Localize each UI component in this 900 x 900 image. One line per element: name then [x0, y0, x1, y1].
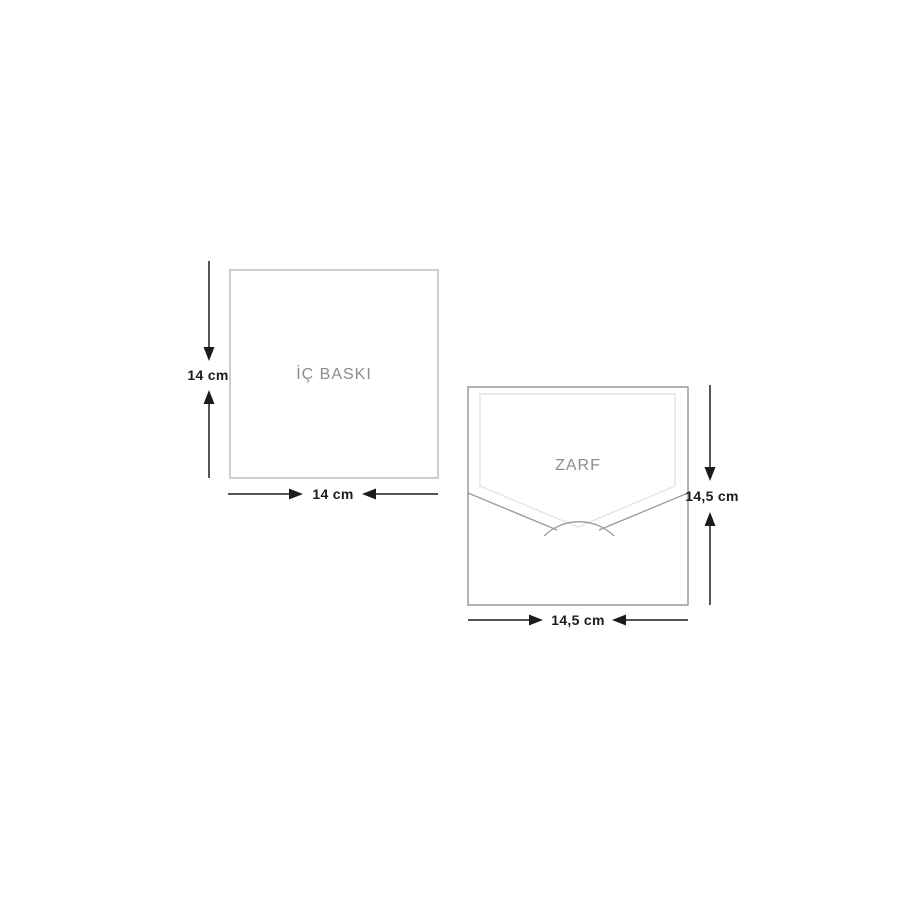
envelope-label: ZARF	[555, 458, 601, 474]
envelope-width-value: 14,5 cm	[551, 613, 604, 627]
arrow-down-icon	[705, 467, 716, 481]
arrow-left-icon	[362, 489, 376, 500]
envelope-square	[468, 387, 688, 605]
diagram-canvas: İÇ BASKI 14 cm 14 cm ZARF 14,5 cm 14,5 c…	[0, 0, 900, 900]
arrow-right-icon	[529, 615, 543, 626]
inner-print-width-value: 14 cm	[312, 487, 353, 501]
inner-print-height-value: 14 cm	[187, 368, 228, 382]
arrow-up-icon	[705, 512, 716, 526]
diagram-linework	[0, 0, 900, 900]
inner-print-label: İÇ BASKI	[296, 367, 372, 383]
envelope-height-value: 14,5 cm	[685, 489, 738, 503]
arrow-right-icon	[289, 489, 303, 500]
arrow-down-icon	[204, 347, 215, 361]
envelope-pocket-left-edge	[468, 493, 557, 530]
arrow-up-icon	[204, 390, 215, 404]
envelope-pocket-right-edge	[599, 493, 688, 530]
arrow-left-icon	[612, 615, 626, 626]
